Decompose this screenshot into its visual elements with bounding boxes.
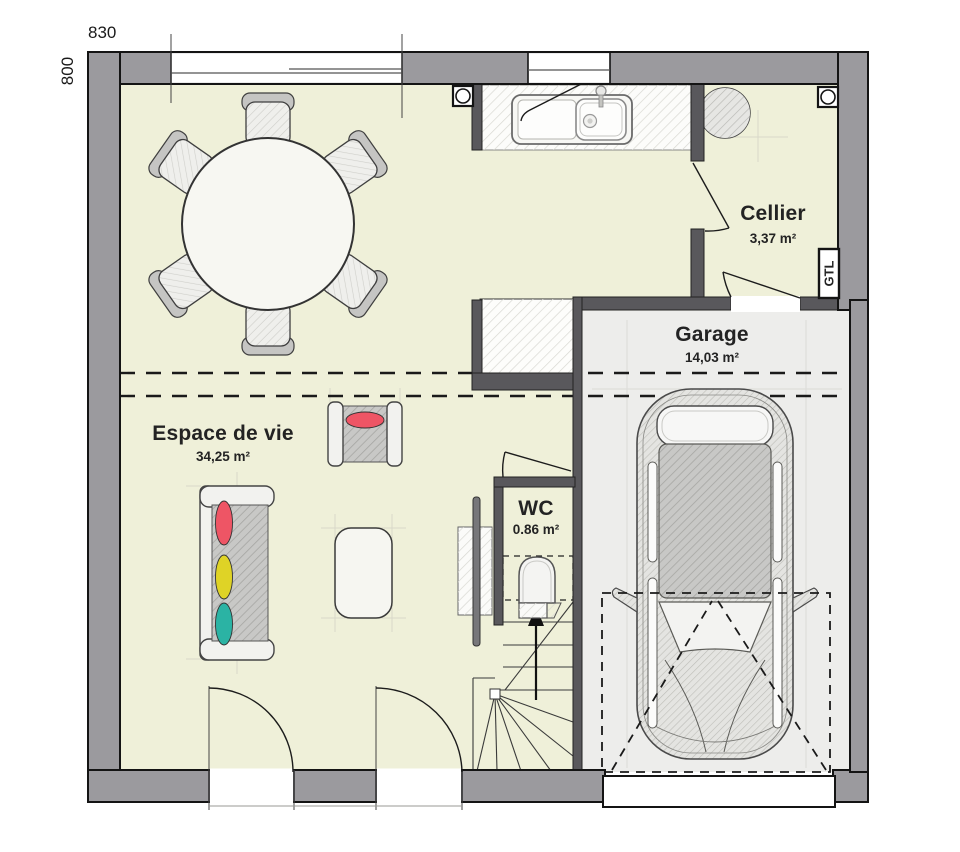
stair-winder-post <box>490 689 500 699</box>
wall-wc-top <box>494 477 575 487</box>
window-kitchen <box>528 52 610 84</box>
kitchen-sink <box>512 86 632 144</box>
car-window <box>773 578 782 728</box>
car <box>612 389 817 759</box>
armchair-cushion-red <box>346 412 384 428</box>
wall-right-upper <box>838 52 868 310</box>
car-window <box>648 578 657 728</box>
vent-grid-kitchen <box>453 86 473 106</box>
garage-room-name: Garage <box>675 323 749 346</box>
gtl-box: GTL <box>819 249 839 298</box>
car-window <box>648 462 657 562</box>
living-room-name: Espace de vie <box>152 422 294 445</box>
car-window <box>773 462 782 562</box>
wall-wc-left <box>494 477 503 625</box>
living-room-area: 34,25 m² <box>196 449 251 464</box>
dimension-top: 830 <box>88 23 116 42</box>
cellier-room-area: 3,37 m² <box>750 231 797 246</box>
garage-room-area: 14,03 m² <box>685 350 740 365</box>
coffee-table <box>335 528 392 618</box>
sofa-cushion-red <box>216 501 233 545</box>
cellier-room-name: Cellier <box>740 202 806 225</box>
floor-plan-drawing: GTL Espace de vie 34,25 m² Cellier 3,37 … <box>0 0 960 852</box>
dining-set <box>146 93 390 355</box>
car-roof <box>659 444 771 598</box>
wall-left <box>88 52 120 802</box>
garage-door <box>603 776 835 807</box>
car-rear-window <box>657 406 773 446</box>
sofa <box>200 486 274 660</box>
gtl-label: GTL <box>822 260 837 286</box>
wall-garage-left <box>573 297 582 772</box>
vent-grid-cellier <box>818 87 838 107</box>
wc-room-name: WC <box>518 497 553 520</box>
wall-bottom-right <box>833 770 868 802</box>
closet <box>480 299 574 375</box>
dimension-left: 800 <box>58 57 77 85</box>
wall-cellier-garage <box>573 297 731 310</box>
wall-kitchen-cellier-lower <box>691 229 704 302</box>
armchair <box>328 402 402 466</box>
tv-screen <box>473 497 480 646</box>
wall-kitchen-cellier-upper <box>691 84 704 161</box>
dining-table <box>182 138 354 310</box>
wall-bottom <box>88 770 605 802</box>
sofa-cushion-yellow <box>216 555 233 599</box>
kitchen-counter <box>481 76 692 150</box>
sink-faucet <box>596 86 606 96</box>
sofa-cushion-teal <box>216 603 233 645</box>
wall-closet-bottom <box>472 373 581 390</box>
water-heater <box>700 88 750 138</box>
wc-room-area: 0.86 m² <box>513 522 560 537</box>
wall-right-lower <box>850 300 868 772</box>
floor-plan-page: GTL Espace de vie 34,25 m² Cellier 3,37 … <box>0 0 960 852</box>
